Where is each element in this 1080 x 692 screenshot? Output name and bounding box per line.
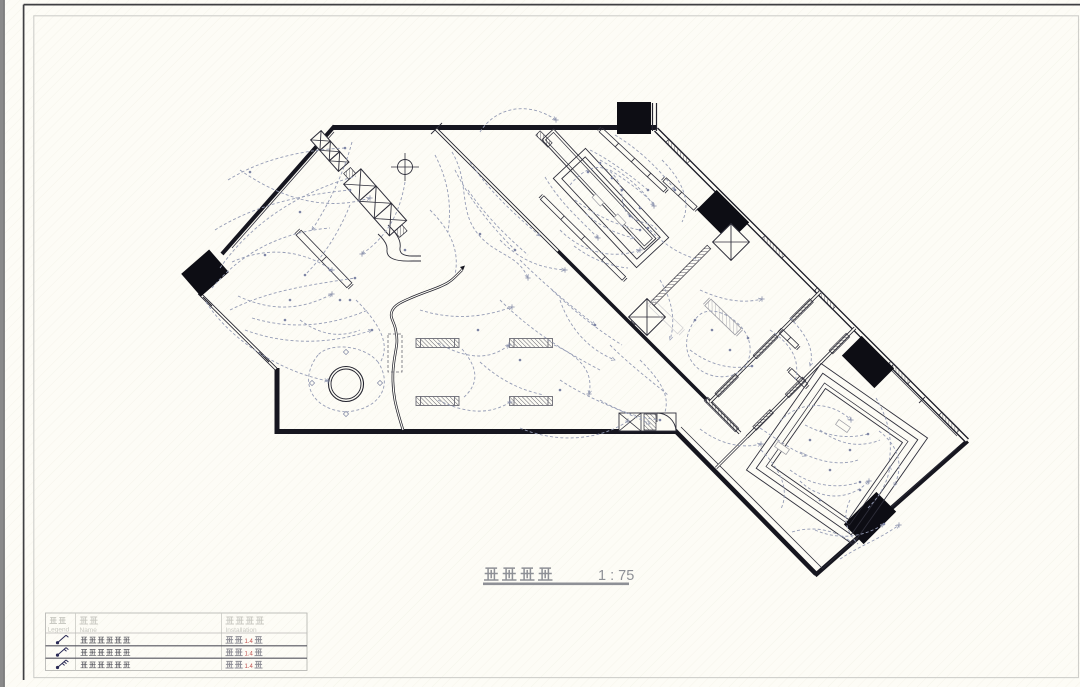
svg-text:Legend: Legend <box>48 627 70 634</box>
svg-text:1 : 75: 1 : 75 <box>598 568 634 584</box>
svg-text:1.4: 1.4 <box>245 639 254 645</box>
svg-text:1.4: 1.4 <box>245 664 254 670</box>
svg-text:Name: Name <box>80 627 98 634</box>
svg-text:1.4: 1.4 <box>245 652 254 658</box>
svg-text:Installation: Installation <box>226 627 257 634</box>
